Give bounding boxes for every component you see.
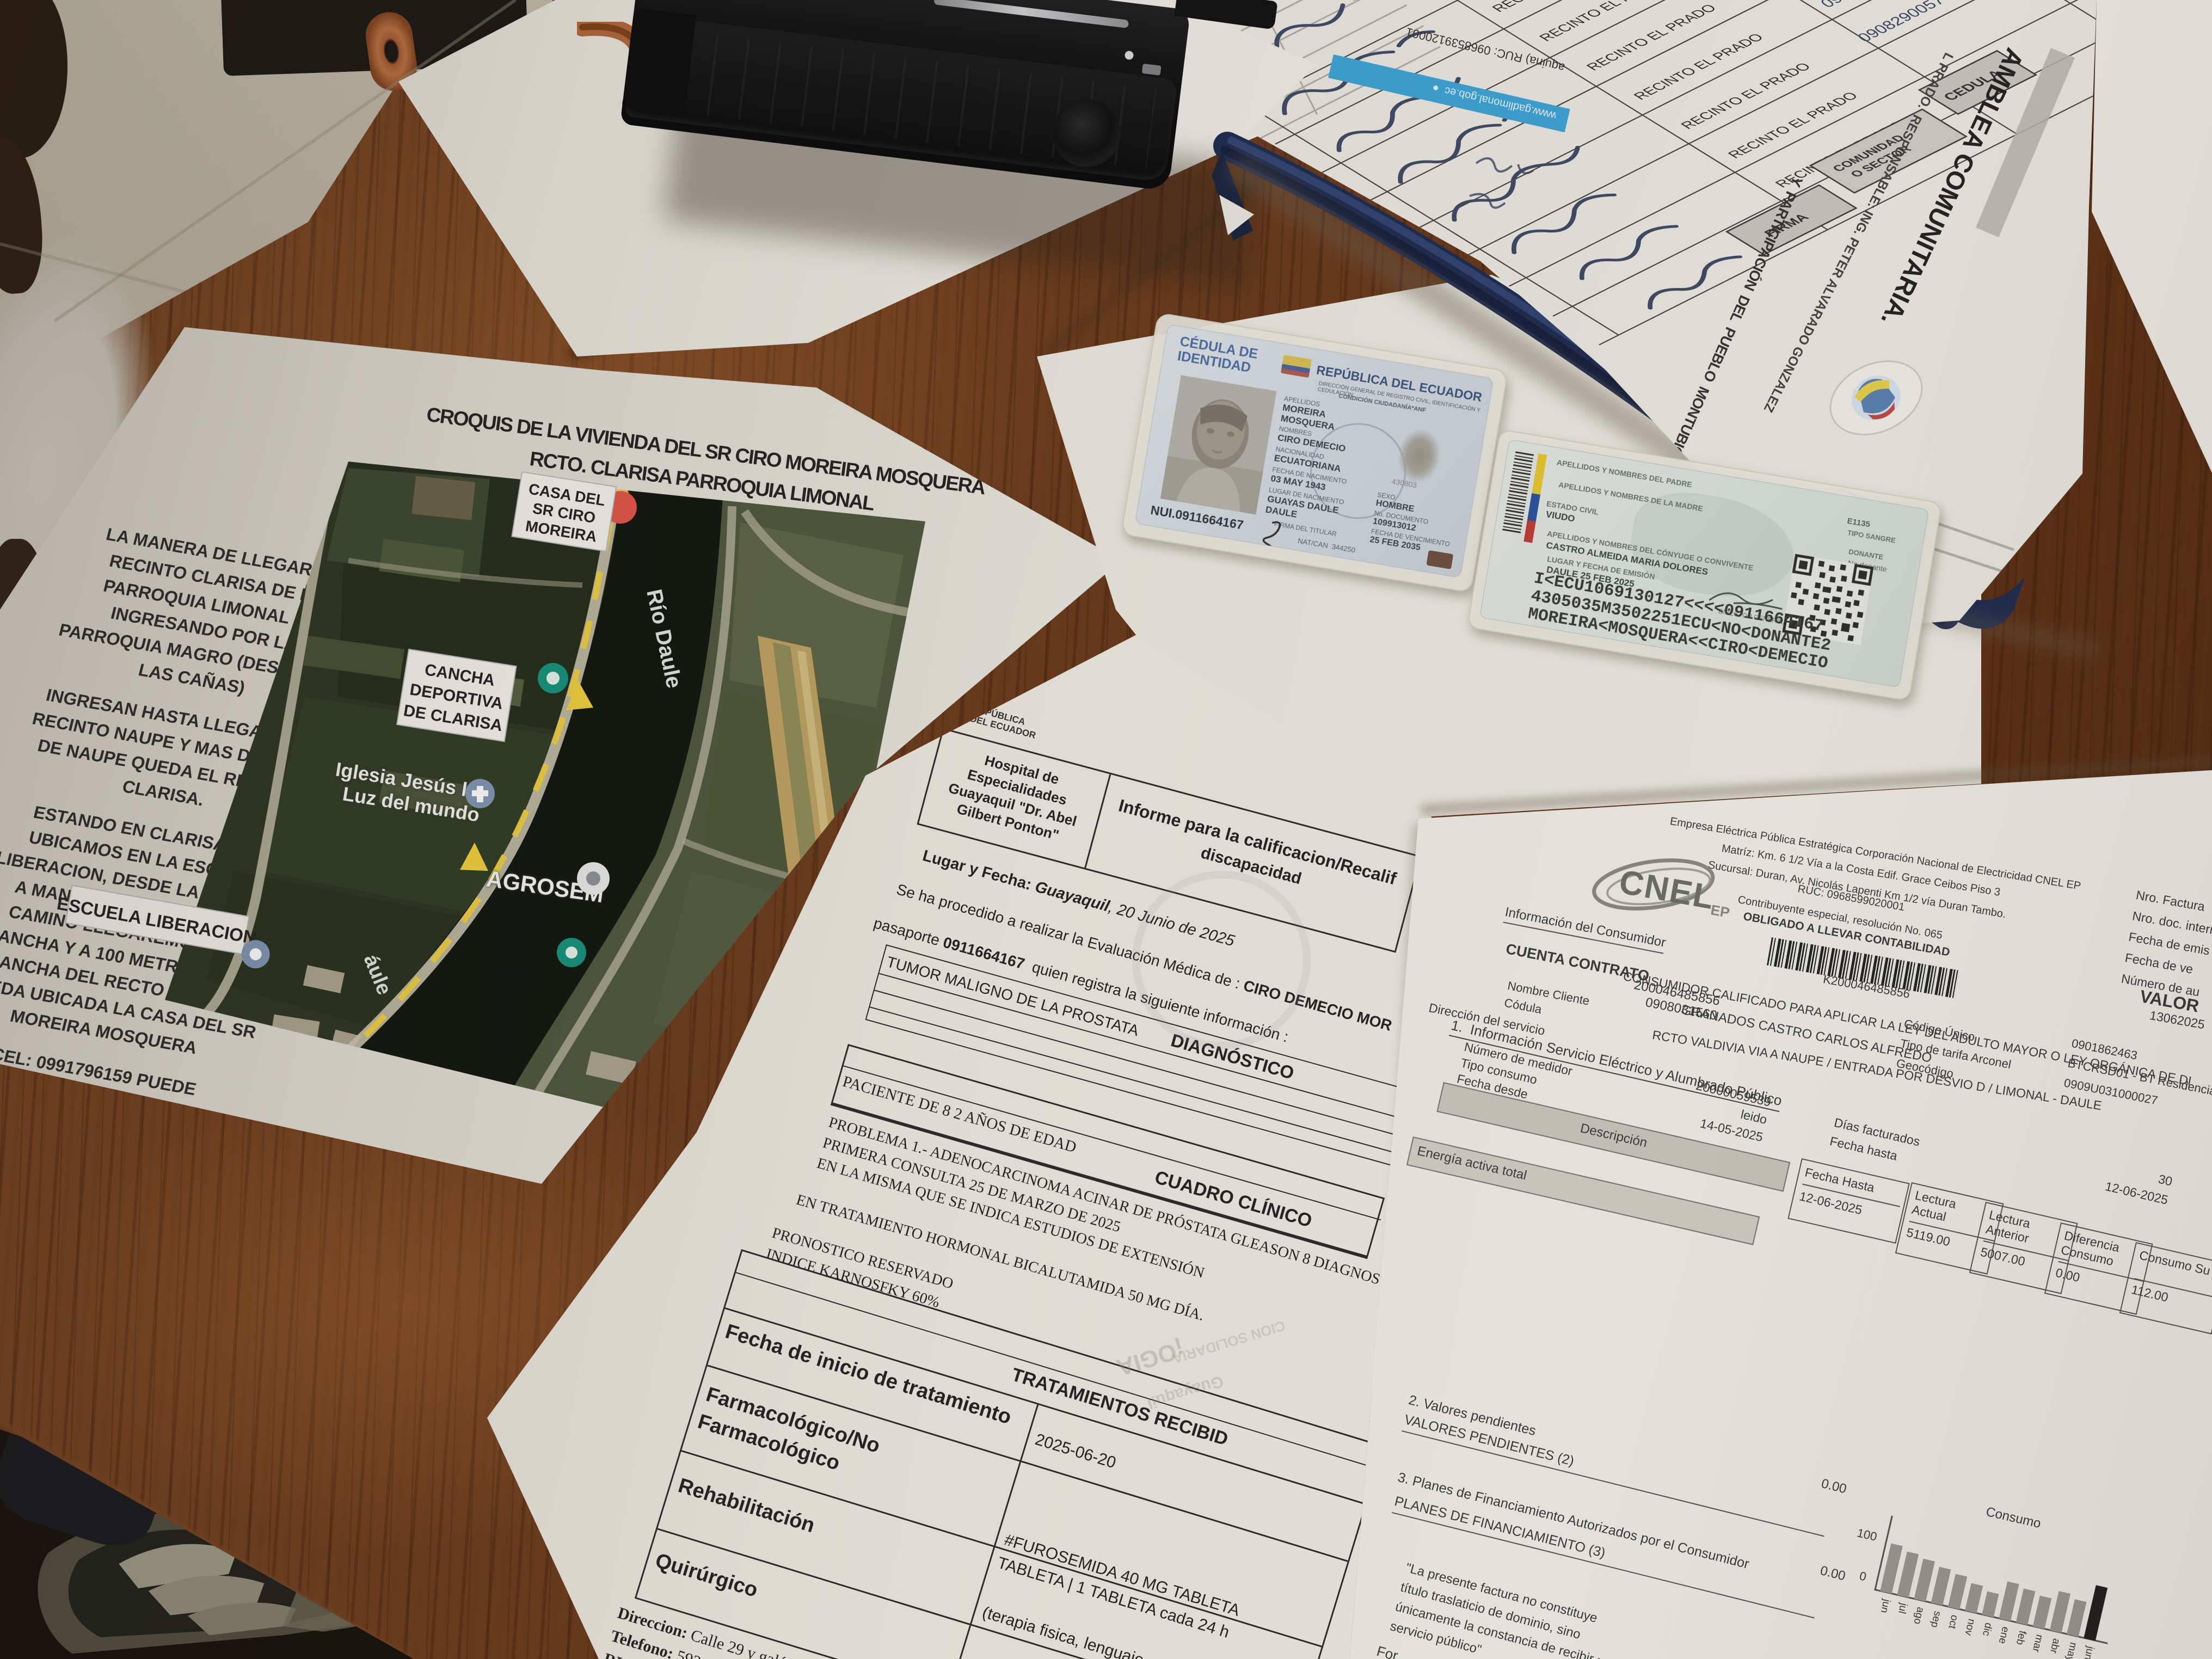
svg-text:0908290057: 0908290057 — [1854, 0, 1949, 45]
